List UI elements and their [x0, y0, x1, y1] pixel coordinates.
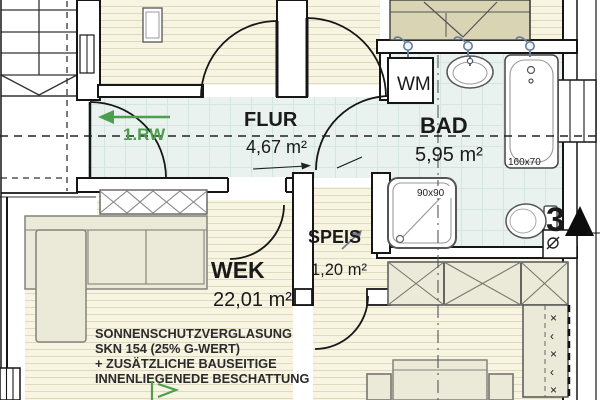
escape-route-label: 1.RW — [123, 125, 166, 144]
bathtub — [505, 55, 558, 168]
bathtub-size-label: 160x70 — [508, 157, 541, 168]
room-label-flur: FLUR — [244, 109, 298, 131]
shower-size-label: 90x90 — [417, 188, 445, 199]
room-top-left-floor — [100, 0, 277, 85]
room-label-wek: WEK — [211, 257, 265, 283]
room-area-bad: 5,95 m² — [415, 144, 483, 166]
mark: ‹ — [550, 329, 554, 343]
room-area-speis: 1,20 m² — [311, 261, 367, 279]
glazing-note-line: SKN 154 (25% G-WERT) — [95, 341, 240, 356]
room-top-right-floor — [307, 0, 380, 85]
room-label-bad: BAD — [420, 113, 468, 138]
washing-machine-label: WM — [397, 74, 431, 95]
floor-plan-drawing: × ‹ × ‹ × WM — [0, 0, 600, 400]
room-label-speis: SPEIS — [308, 227, 361, 247]
sink — [447, 56, 493, 88]
glazing-note-line: + ZUSÄTZLICHE BAUSEITIGE — [95, 356, 277, 371]
sheet-number: 3 — [546, 201, 565, 239]
mark: ‹ — [550, 365, 554, 379]
room-area-wek: 22,01 m² — [213, 289, 292, 311]
washing-machine: WM — [388, 58, 433, 103]
mark: × — [550, 347, 557, 361]
wek-floor-white-patch — [7, 196, 97, 218]
shelf-furniture — [143, 8, 162, 42]
glazing-note-line: SONNENSCHUTZVERGLASUNG — [95, 326, 292, 341]
wek-door-opening — [228, 177, 286, 193]
built-in-wardrobe-top — [390, 0, 530, 40]
nightstand — [367, 374, 391, 400]
window-bottom-left — [0, 368, 20, 400]
floor-plan: × ‹ × ‹ × WM — [0, 0, 600, 400]
wardrobe-sliding-marks: × ‹ × ‹ × — [550, 311, 557, 397]
room-area-flur: 4,67 m² — [246, 137, 307, 157]
glazing-note-line: INNENLIEGENEDE BESCHATTUNG — [95, 371, 310, 386]
door-pillar — [277, 0, 307, 97]
nightstand — [489, 374, 513, 400]
window-right-wall — [558, 80, 596, 142]
corner-floor — [530, 0, 563, 40]
mark: × — [550, 383, 557, 397]
mark: × — [550, 311, 557, 325]
wek-wardrobe-strip — [100, 190, 207, 214]
